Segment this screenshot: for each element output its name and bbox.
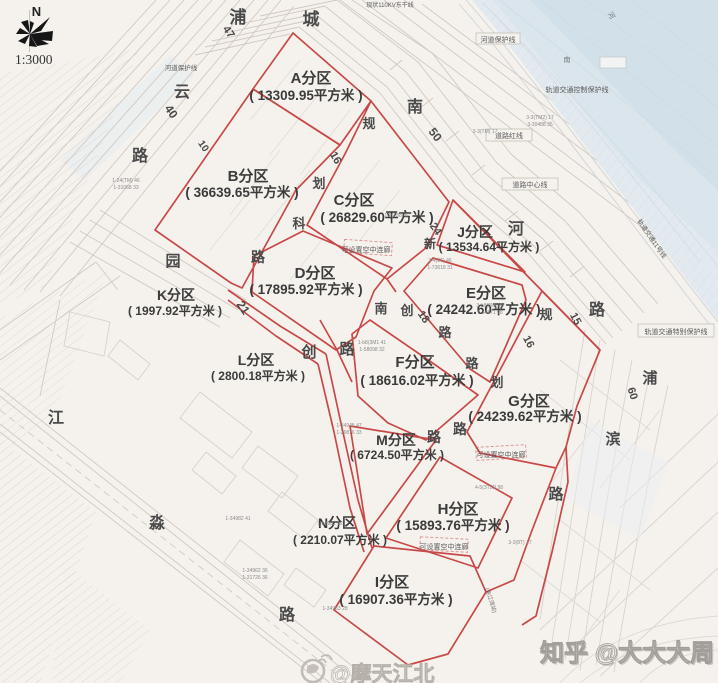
svg-text:1-29876 33: 1-29876 33	[336, 430, 362, 436]
svg-text:1-b8982 12: 1-b8982 12	[317, 521, 343, 527]
svg-text:D分区: D分区	[295, 265, 336, 282]
svg-text:现状110KV东干线: 现状110KV东干线	[366, 1, 414, 9]
svg-text:1-31726 36: 1-31726 36	[242, 575, 268, 581]
svg-text:( 13309.95平方米 ): ( 13309.95平方米 )	[249, 87, 362, 103]
svg-text:H分区: H分区	[438, 501, 479, 518]
svg-text:( 17895.92平方米 ): ( 17895.92平方米 )	[249, 281, 362, 297]
svg-text:浦: 浦	[230, 7, 247, 27]
svg-text:( 18616.02平方米 ): ( 18616.02平方米 )	[360, 372, 473, 388]
svg-text:L分区: L分区	[238, 352, 275, 368]
svg-text:南: 南	[564, 55, 571, 64]
svg-text:路: 路	[427, 429, 442, 445]
svg-text:( 13534.64平方米 ): ( 13534.64平方米 )	[439, 239, 540, 254]
svg-text:( 2800.18平方米 ): ( 2800.18平方米 )	[211, 368, 305, 383]
svg-text:1:3000: 1:3000	[15, 52, 53, 67]
svg-text:河道保护线: 河道保护线	[165, 63, 198, 72]
svg-text:路: 路	[251, 249, 266, 265]
svg-text:城: 城	[303, 10, 320, 29]
svg-text:3-3(TM) 17: 3-3(TM) 17	[473, 129, 498, 135]
svg-text:@摩天江北: @摩天江北	[330, 662, 434, 683]
svg-text:E分区: E分区	[466, 285, 506, 302]
svg-text:3-b8(8M) 96: 3-b8(8M) 96	[476, 303, 503, 309]
svg-text:3-3(TM2) 17: 3-3(TM2) 17	[526, 115, 554, 121]
svg-text:河: 河	[508, 219, 524, 238]
svg-text:滨: 滨	[605, 430, 620, 448]
svg-text:淼: 淼	[148, 513, 166, 532]
svg-text:创: 创	[399, 303, 413, 318]
svg-text:道路中心线: 道路中心线	[513, 180, 548, 189]
svg-text:1-2(T88) 8: 1-2(T88) 8	[384, 213, 408, 219]
svg-text:M分区: M分区	[376, 432, 416, 448]
svg-text:路: 路	[465, 356, 479, 371]
svg-text:( 15893.76平方米 ): ( 15893.76平方米 )	[396, 517, 509, 533]
svg-text:C分区: C分区	[334, 192, 375, 209]
svg-text:1-34962 36: 1-34962 36	[242, 568, 268, 574]
svg-text:路: 路	[132, 146, 149, 165]
svg-text:南: 南	[374, 301, 387, 316]
svg-text:划: 划	[490, 375, 503, 390]
svg-text:N: N	[32, 4, 41, 19]
svg-text:轨道交通特别保护线: 轨道交通特别保护线	[645, 327, 708, 336]
svg-text:云: 云	[174, 84, 190, 101]
svg-text:1-73618 31: 1-73618 31	[427, 265, 453, 271]
svg-text:可设置空中连廊: 可设置空中连廊	[342, 245, 391, 254]
svg-text:( 36639.65平方米 ): ( 36639.65平方米 )	[185, 184, 298, 200]
svg-text:路: 路	[453, 421, 468, 437]
svg-text:规: 规	[362, 116, 375, 131]
svg-text:( 1997.92平方米 ): ( 1997.92平方米 )	[128, 303, 222, 318]
svg-text:I分区: I分区	[375, 574, 409, 591]
svg-text:4-5(3T2R 98: 4-5(3T2R 98	[475, 485, 503, 491]
svg-text:( 26829.60平方米 ): ( 26829.60平方米 )	[320, 209, 433, 225]
svg-text:1-34963 28: 1-34963 28	[322, 606, 348, 612]
svg-text:路: 路	[279, 605, 296, 624]
svg-text:江: 江	[48, 409, 64, 427]
svg-text:知乎 @大大大周: 知乎 @大大大周	[540, 640, 714, 667]
svg-text:( 2210.07平方米 ): ( 2210.07平方米 )	[293, 532, 387, 547]
svg-text:轨道交通控制保护线: 轨道交通控制保护线	[546, 85, 609, 94]
svg-text:K分区: K分区	[157, 287, 195, 303]
svg-text:( 16907.36平方米 ): ( 16907.36平方米 )	[339, 591, 452, 607]
svg-text:可设置空中连廊: 可设置空中连廊	[420, 542, 469, 551]
svg-text:规: 规	[539, 307, 552, 322]
svg-text:路: 路	[438, 325, 452, 340]
svg-text:南: 南	[407, 97, 423, 116]
svg-text:路: 路	[548, 485, 564, 503]
svg-text:B分区: B分区	[228, 168, 269, 185]
svg-text:( 6724.50平方米 ): ( 6724.50平方米 )	[350, 447, 444, 462]
svg-text:浦: 浦	[642, 369, 657, 387]
svg-text:( 24239.62平方米 ): ( 24239.62平方米 )	[468, 408, 581, 424]
svg-text:1-31068 33: 1-31068 33	[113, 185, 139, 191]
svg-text:1-b8(3M1 41: 1-b8(3M1 41	[358, 340, 387, 346]
svg-text:3-4(3T) 46: 3-4(3T) 46	[428, 258, 452, 264]
svg-text:A分区: A分区	[291, 70, 332, 87]
svg-text:河道保护线: 河道保护线	[481, 35, 516, 44]
svg-text:可设置空中连廊: 可设置空中连廊	[477, 450, 526, 459]
svg-text:1-34982 41: 1-34982 41	[225, 516, 251, 522]
svg-text:3-30488 35: 3-30488 35	[527, 122, 553, 128]
svg-text:道路红线: 道路红线	[495, 131, 523, 140]
svg-text:科: 科	[292, 216, 305, 231]
svg-text:园: 园	[165, 253, 180, 270]
svg-text:1-58098 32: 1-58098 32	[359, 347, 385, 353]
svg-text:F分区: F分区	[395, 354, 434, 371]
svg-text:J分区: J分区	[457, 224, 493, 240]
svg-text:1-34945 47: 1-34945 47	[336, 423, 362, 429]
svg-text:新: 新	[424, 236, 436, 251]
svg-text:1-34871 98: 1-34871 98	[477, 310, 503, 316]
svg-text:路: 路	[589, 300, 606, 319]
svg-text:G分区: G分区	[508, 393, 550, 410]
svg-text:1-24(TM) 46: 1-24(TM) 46	[112, 178, 140, 184]
svg-text:路: 路	[339, 340, 355, 358]
svg-text:划: 划	[312, 176, 325, 191]
svg-text:3-3(8T) 17: 3-3(8T) 17	[508, 540, 532, 546]
svg-text:创: 创	[300, 343, 316, 361]
